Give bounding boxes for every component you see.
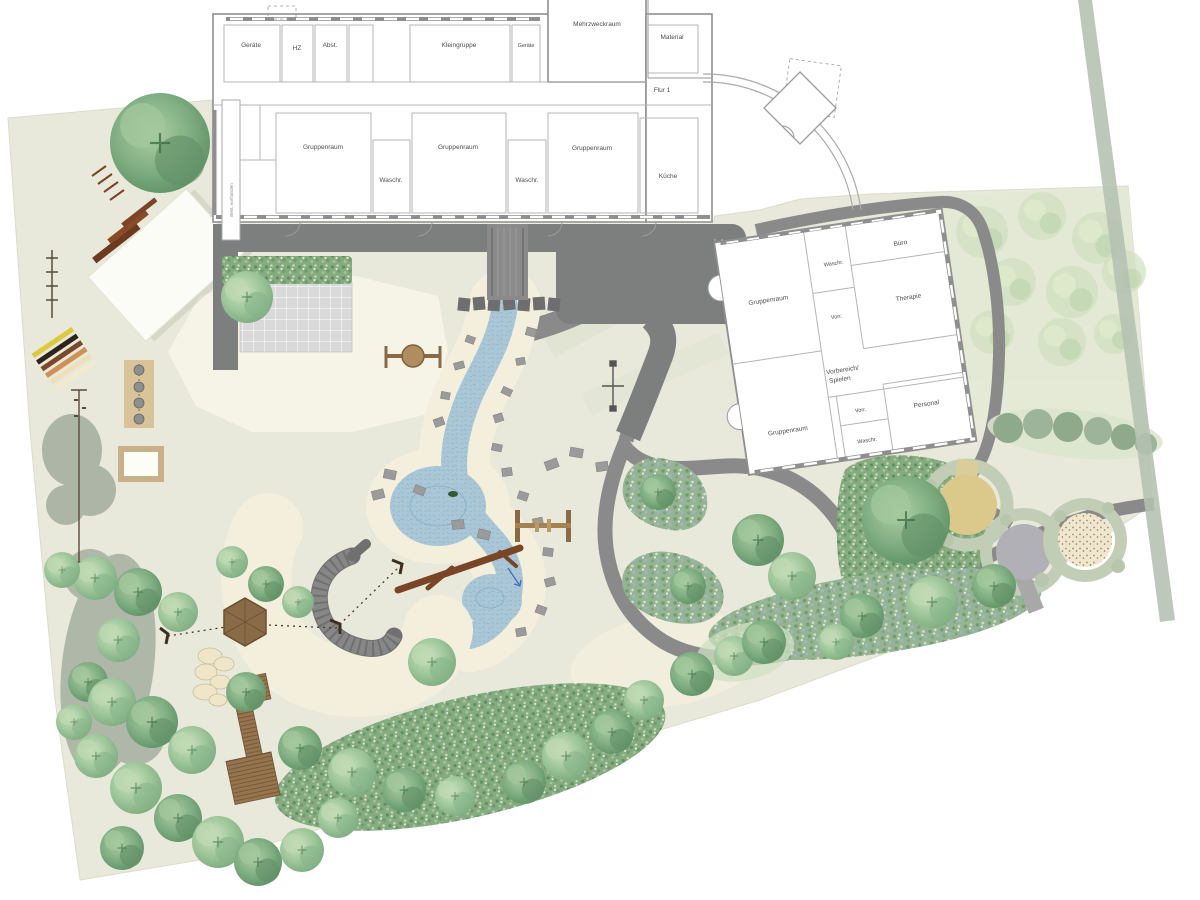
tree xyxy=(408,638,456,686)
tree xyxy=(56,704,92,740)
tree xyxy=(248,566,284,602)
bridge xyxy=(487,224,528,300)
tree xyxy=(216,546,248,578)
tree xyxy=(670,568,706,604)
tree xyxy=(114,568,162,616)
tree xyxy=(640,474,676,510)
tree xyxy=(742,620,786,664)
tree xyxy=(74,734,118,778)
sandbox xyxy=(118,446,164,482)
tree xyxy=(906,576,958,628)
tree xyxy=(226,672,266,712)
tree xyxy=(624,680,664,720)
room-label-gruppenraum-2: Gruppenraum xyxy=(438,144,478,151)
room-label-material: Material xyxy=(660,34,684,41)
lower-pond-water xyxy=(462,574,522,626)
tree xyxy=(278,726,322,770)
orchard-tree xyxy=(1046,266,1098,318)
site-plan-canvas: Geräte HZ Abst. Kleingruppe Geräte Mehrz… xyxy=(0,0,1200,900)
orchard-tree xyxy=(970,310,1014,354)
tree xyxy=(382,768,426,812)
tree xyxy=(862,476,950,564)
animal-figure xyxy=(448,491,458,497)
tree xyxy=(282,586,314,618)
room-label-waschraum-2: Waschr. xyxy=(515,177,538,184)
site-plan-drawing: Geräte HZ Abst. Kleingruppe Geräte Mehrz… xyxy=(0,0,1200,900)
pond-water xyxy=(390,466,486,546)
note-bestand: Best. vorhanden xyxy=(229,183,234,217)
tree xyxy=(435,776,475,816)
stepping-posts xyxy=(124,360,154,428)
room-label-waschraum-1: Waschr. xyxy=(379,177,402,184)
tree xyxy=(768,552,816,600)
room-label-flur: Flur 1 xyxy=(654,87,671,94)
room-label-gruppenraum-1: Gruppenraum xyxy=(303,144,343,151)
orchard-tree xyxy=(1018,192,1066,240)
existing-building-strip xyxy=(222,100,240,240)
room-label-kleingruppe: Kleingruppe xyxy=(442,42,477,49)
main-building: Geräte HZ Abst. Kleingruppe Geräte Mehrz… xyxy=(213,0,712,240)
tree xyxy=(110,93,210,193)
room-label-hz: HZ xyxy=(293,45,302,52)
tree xyxy=(96,618,140,662)
tree xyxy=(670,652,714,696)
orchard-tree xyxy=(1038,318,1086,366)
room-label-geraete-ne: Geräte xyxy=(518,43,535,49)
entry-pavilion xyxy=(764,59,841,144)
tree xyxy=(318,798,358,838)
room-label-kueche: Küche xyxy=(659,173,678,180)
tree xyxy=(818,624,854,660)
room-label-gruppenraum-3: Gruppenraum xyxy=(572,145,612,152)
tree xyxy=(280,828,324,872)
tree xyxy=(221,271,273,323)
room-label-geraete-nw: Geräte xyxy=(241,42,261,49)
tree xyxy=(110,762,162,814)
tree xyxy=(44,552,80,588)
tree xyxy=(73,556,117,600)
tree xyxy=(328,748,376,796)
annex-building: Gruppenraum Waschr. Vorr. Büro Therapie … xyxy=(701,209,976,477)
tree xyxy=(542,732,590,780)
tree xyxy=(590,710,634,754)
room-label-mehrzweckraum: Mehrzweckraum xyxy=(573,21,621,28)
tree xyxy=(972,564,1016,608)
tree xyxy=(502,760,546,804)
tree xyxy=(234,838,282,886)
tree xyxy=(100,826,144,870)
room-label-abstell: Abst. xyxy=(323,42,338,49)
tree xyxy=(168,726,216,774)
tree xyxy=(158,592,198,632)
